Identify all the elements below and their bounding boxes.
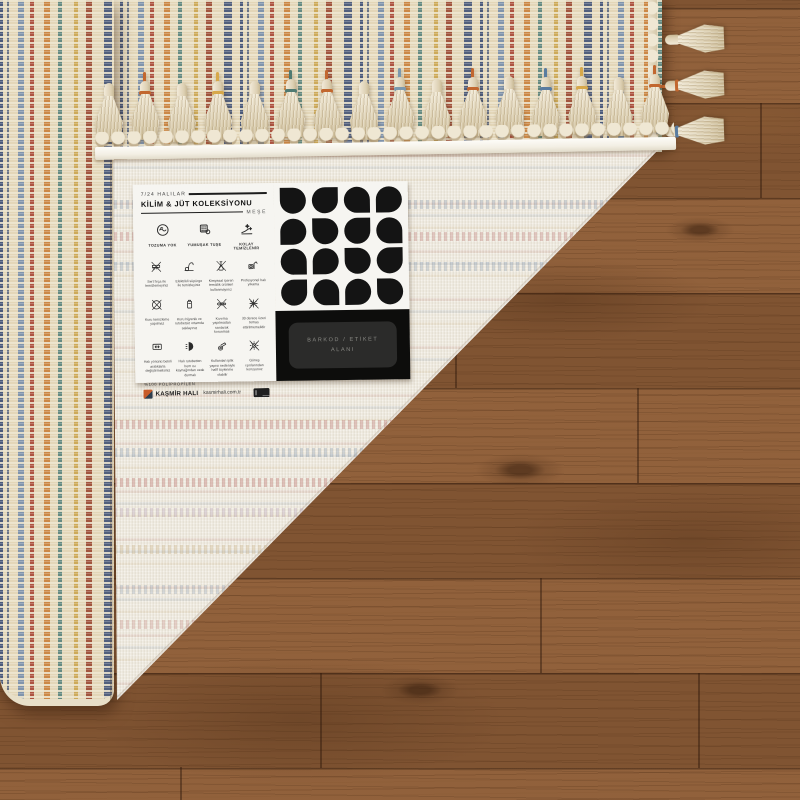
brand-motif-shape [313,279,339,305]
care-caption: Profesyonel halı yıkama [239,278,268,288]
rotate-rug-icon [151,340,164,358]
store-dry-icon [183,297,196,315]
care-caption: Kullanılan iplik yapısı nedeniyle hafif … [208,359,238,378]
no-wring-icon [215,297,228,315]
brand-motif-shape [312,187,338,213]
feature-item: TOZUMA YOK [143,222,181,252]
tassel-skirt [678,24,725,54]
brand-motif-shape [344,187,370,213]
feature-item: YUMUŞAK TUŞE [185,221,223,251]
feature-caption: KOLAY TEMİZLENİR [227,242,265,251]
brand-motif-shape [280,218,306,244]
care-caption: Halı yönünü belirli aralıklarla değiştir… [143,360,172,374]
tassel-head [665,34,680,45]
care-item: Kuru temizleme yapılmaz [142,298,172,336]
wood-knot [665,217,735,243]
label-title: KİLİM & JÜT KOLEKSİYONU [141,198,267,209]
care-item: Kimyasal içeren temizlik ürünleri kullan… [206,259,236,293]
no-hot-wash-icon [247,296,260,314]
soft-touch-icon [197,221,212,241]
tassel-skirt [678,116,725,146]
brand-motif-shape [313,248,339,274]
feature-icons-row: TOZUMA YOK YUMUŞAK TUŞE KOLAY TEMİZLENİR [143,221,265,252]
no-hard-brush-icon [150,260,163,278]
fold-left-edge-shadow [110,156,115,702]
tassel-skirt [678,70,725,100]
care-caption: 30 derece üzeri temas ettirilmemelidir [239,316,268,330]
brand-motif-shape [280,188,306,214]
care-caption: Kıvırma yapılmadan sarılarak korunmalı [207,316,237,335]
brand-motif-shape [344,217,370,243]
brand-motif-shape [345,278,371,304]
tassel-head [359,81,369,96]
tassel-head [104,83,114,98]
header-rule [141,211,243,214]
professional-clean-icon [247,258,260,276]
easy-clean-icon [239,221,254,241]
brand-motif-shape [376,186,402,212]
care-caption: Halı rutubetten hem ısı kaynağından uzak… [175,359,205,378]
no-sunlight-icon [248,339,261,357]
feature-item: KOLAY TEMİZLENİR [227,221,265,251]
tassel-head [432,79,442,94]
brand-motif-shape [376,217,402,243]
care-caption: Elektrikli süpürge ile temizleyiniz [174,278,203,288]
brand-motif-shape [345,248,371,274]
wood-knot [380,675,460,705]
care-item: Halı yönünü belirli aralıklarla değiştir… [143,340,173,378]
care-item: Sert fırça ile temizlemeyiniz [142,259,172,293]
care-caption: Sert fırça ile temizlemeyiniz [142,279,171,289]
vacuum-icon [182,259,195,277]
brand-motif-shape [281,279,307,305]
no-dry-clean-icon [151,298,164,316]
barcode-area: BARKOD / ETİKET ALANI [289,321,398,369]
plank-seam [540,578,542,673]
barcode-area-line2: ALANI [331,345,355,356]
care-item: Halı rutubetten hem ısı kaynağından uzak… [175,340,205,378]
care-item: Profesyonel halı yıkama [238,258,268,292]
feature-caption: YUMUŞAK TUŞE [187,243,221,247]
care-caption: Kuru hijyenik ve rutubetsiz ortamda sakl… [175,317,204,331]
label-graphic-panel: BARKOD / ETİKET ALANI [274,181,411,381]
barcode-panel: BARKOD / ETİKET ALANI [275,309,410,381]
collection-line-text: 7/24 HALILAR [141,191,186,198]
care-item: 30 derece üzeri temas ettirilmemelidir [239,296,269,334]
brand-row: KAŞMİR HALI kasmirhali.com.tr [143,388,269,399]
tassel-head [504,76,514,91]
brand-motif-shape [281,249,307,275]
no-shedding-icon [155,222,170,242]
label-collection-line: 7/24 HALILAR [141,190,267,198]
care-caption: Kimyasal içeren temizlik ürünleri kullan… [206,278,235,292]
care-label: 7/24 HALILAR KİLİM & JÜT KOLEKSİYONU MEŞ… [133,181,411,383]
tassel-head [177,83,187,98]
care-caption: Güneş ışınlarından koruyunuz [240,358,269,372]
plank-seam [698,673,700,768]
plank-seam [637,388,639,483]
care-item: Kıvırma yapılmadan sarılarak korunmalı [207,297,237,335]
tassel-head [614,77,624,92]
wood-knot [475,453,565,487]
brand-pattern-motifs [274,181,410,311]
brand-motif-shape [377,247,403,273]
care-instructions-grid: Sert fırça ile temizlemeyiniz Elektrikli… [142,258,270,378]
plank-seam [180,767,182,800]
shedding-note-icon [216,339,229,357]
brand-motif-shape [312,218,338,244]
feature-caption: TOZUMA YOK [148,243,176,247]
kasmir-hali-logo-icon [143,389,152,398]
brand-motif-shape [377,278,403,304]
brand-name: KAŞMİR HALI [155,390,198,398]
header-rule [189,192,267,195]
care-caption: Kuru temizleme yapılmaz [142,317,171,327]
rug-product-photo: 7/24 HALILAR KİLİM & JÜT KOLEKSİYONU MEŞ… [0,0,800,800]
label-subtitle-line: MEŞE [141,209,267,217]
label-subtitle: MEŞE [246,209,267,215]
label-info-panel: 7/24 HALILAR KİLİM & JÜT KOLEKSİYONU MEŞ… [133,183,277,383]
brand-website: kasmirhali.com.tr [203,389,241,396]
plank-seam [320,673,322,768]
plank-seam [760,103,762,198]
barcode-area-line1: BARKOD / ETİKET [307,334,378,345]
keep-from-heat-icon [183,340,196,358]
care-item: Güneş ışınlarından koruyunuz [240,339,270,377]
care-item: Kullanılan iplik yapısı nedeniyle hafif … [207,339,237,377]
fringe-tassel [659,23,726,55]
tassel-head [250,81,260,96]
certification-badge-icon [253,388,269,397]
no-chemicals-icon [215,259,228,277]
care-item: Kuru hijyenik ve rutubetsiz ortamda sakl… [174,297,204,335]
care-item: Elektrikli süpürge ile temizleyiniz [174,259,204,293]
